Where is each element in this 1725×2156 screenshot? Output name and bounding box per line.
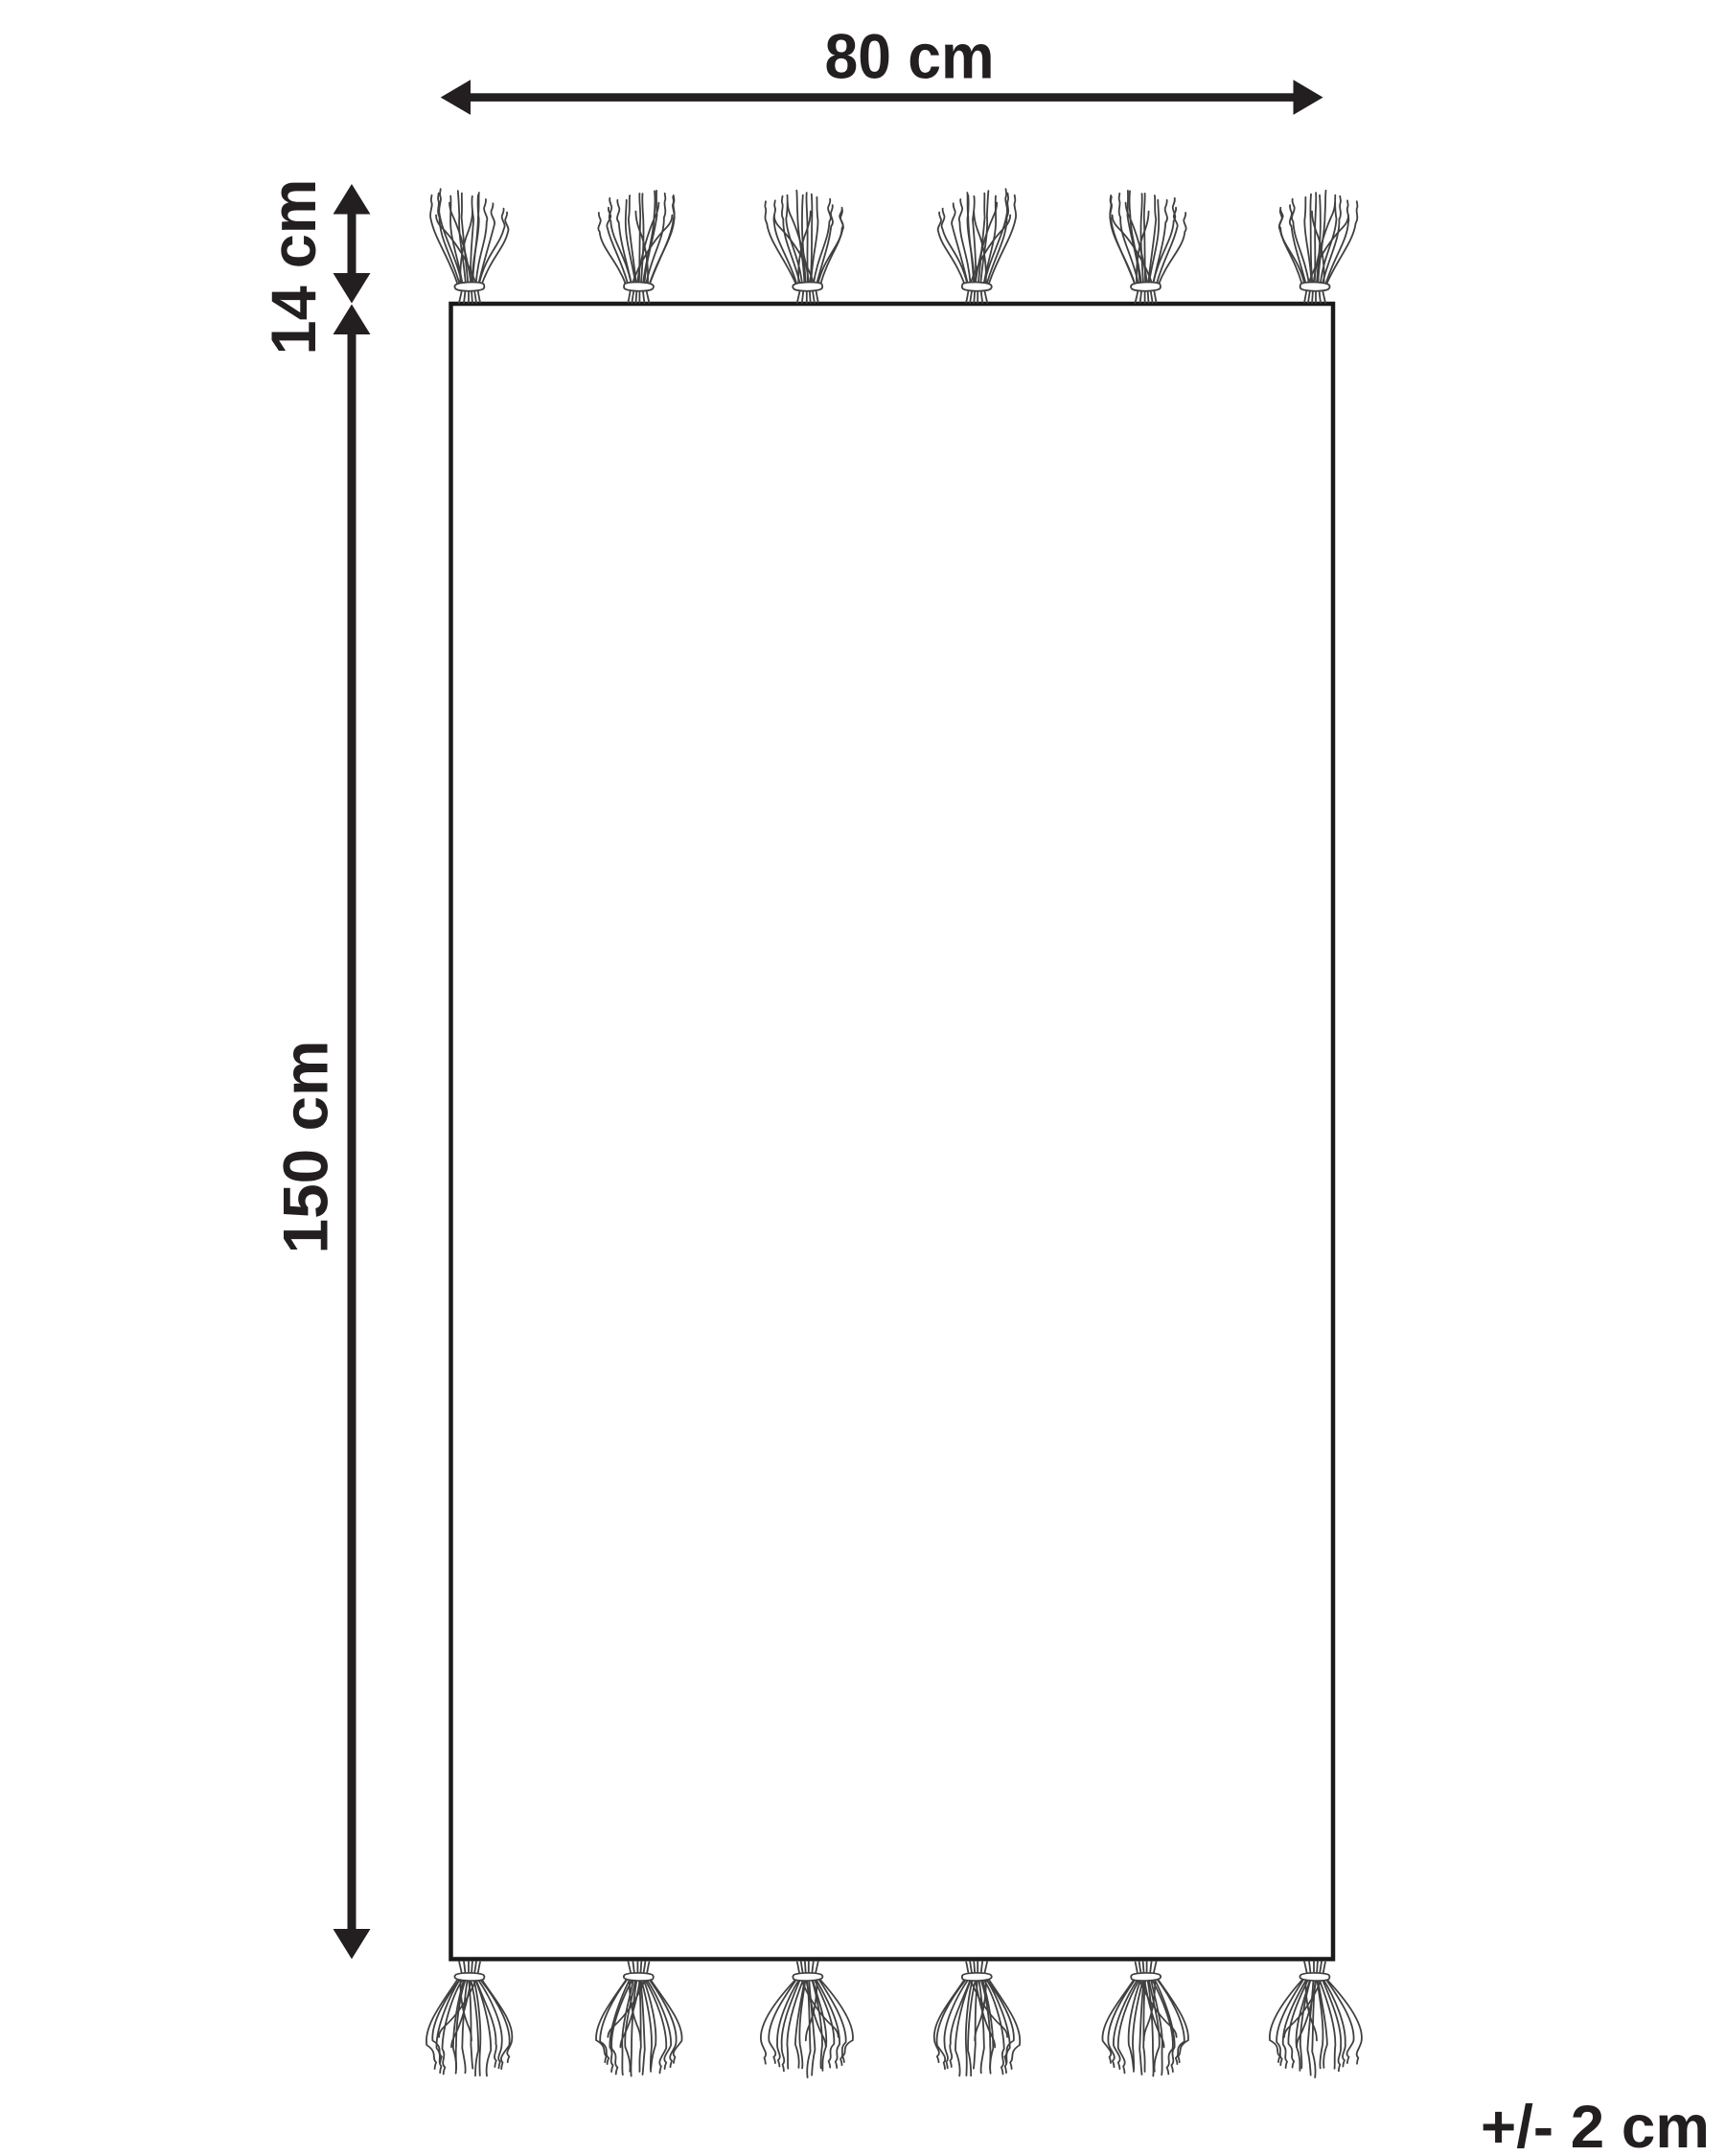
svg-text:14 cm: 14 cm bbox=[258, 179, 329, 356]
svg-text:80 cm: 80 cm bbox=[825, 21, 995, 92]
svg-text:150 cm: 150 cm bbox=[270, 1041, 341, 1254]
svg-text:+/- 2 cm: +/- 2 cm bbox=[1481, 2094, 1710, 2156]
